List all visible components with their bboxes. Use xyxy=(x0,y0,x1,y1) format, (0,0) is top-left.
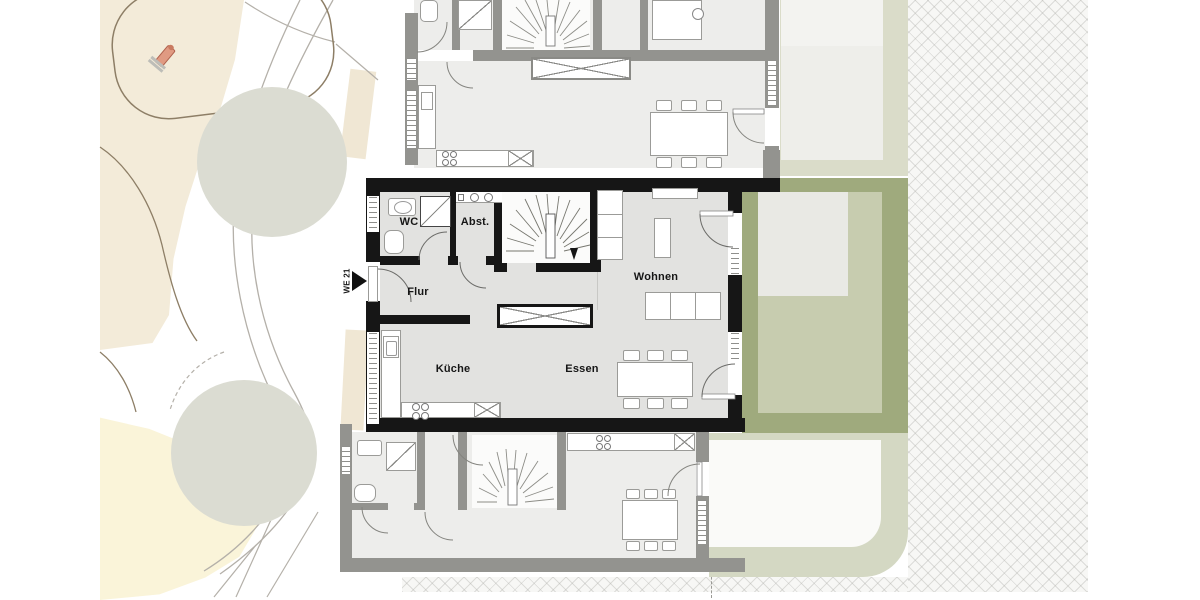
tree-canopy-2 xyxy=(171,380,317,526)
stove-burners xyxy=(412,403,434,418)
chair xyxy=(644,489,658,499)
chair xyxy=(706,100,722,111)
dishwasher xyxy=(474,402,500,418)
door-opening xyxy=(418,50,473,61)
wall-stair-right xyxy=(557,432,566,510)
wall-bath-row xyxy=(380,256,420,265)
furniture-knob xyxy=(692,8,704,20)
room-label-flur: Flur xyxy=(407,286,429,298)
tree-canopy-1 xyxy=(197,87,347,237)
furniture xyxy=(652,0,702,40)
chair xyxy=(706,157,722,168)
washbasin-bowl xyxy=(394,201,412,214)
terrace-we21 xyxy=(758,192,848,296)
wall-flur-kueche xyxy=(380,315,470,324)
sink xyxy=(421,92,433,110)
chair xyxy=(681,100,697,111)
room-label-abst: Abst. xyxy=(461,216,490,228)
window xyxy=(369,333,377,423)
site-plan: WC Abst. Flur Küche Essen Wohnen WE 21 xyxy=(0,0,1200,600)
unit-lower-wall-bottom xyxy=(340,558,745,572)
chair xyxy=(647,398,664,409)
chair xyxy=(626,541,640,551)
window xyxy=(698,500,706,544)
unit-we21-stair-floor xyxy=(502,192,590,263)
chair xyxy=(671,350,688,361)
unit-upper-wall xyxy=(640,0,648,50)
unit-we21-wall-bottom xyxy=(366,418,745,432)
dining-table xyxy=(617,362,693,397)
sideboard xyxy=(531,57,631,80)
wall-stair-bottom xyxy=(502,263,507,272)
chair xyxy=(656,100,672,111)
terrace-lower-unit xyxy=(709,440,881,547)
entrance-door-leaf xyxy=(368,266,378,302)
unit-lower-stair-floor xyxy=(472,435,557,508)
chair xyxy=(671,398,688,409)
window xyxy=(731,333,739,362)
sideboard-wohnen xyxy=(652,188,698,199)
toilet xyxy=(354,484,376,502)
room-label-kueche: Küche xyxy=(436,363,471,375)
chair xyxy=(623,398,640,409)
chair xyxy=(662,541,676,551)
wall-corridor xyxy=(458,432,467,510)
toilet xyxy=(420,0,438,22)
stove-burners xyxy=(596,435,616,450)
chair xyxy=(662,489,676,499)
room-label-wohnen: Wohnen xyxy=(634,271,678,283)
sink-basin xyxy=(386,341,397,356)
unit-upper-wall xyxy=(493,0,502,50)
room-label-essen: Essen xyxy=(565,363,598,375)
chair xyxy=(626,489,640,499)
chair xyxy=(681,157,697,168)
unit-we21-wall-top xyxy=(366,178,780,192)
window xyxy=(342,446,350,474)
unit-upper-stair-floor xyxy=(502,0,590,50)
door-opening xyxy=(696,462,709,496)
shower xyxy=(420,196,451,227)
door-opening xyxy=(765,108,779,146)
stove-burners xyxy=(442,151,462,166)
washbasin xyxy=(357,440,382,456)
sideboard-partition xyxy=(497,304,593,328)
terrace-upper-unit-top xyxy=(781,0,883,46)
chair xyxy=(647,350,664,361)
wardrobe xyxy=(597,190,623,260)
unit-upper-wall xyxy=(593,0,602,50)
tv-board xyxy=(654,218,671,258)
chair xyxy=(656,157,672,168)
room-label-wc: WC xyxy=(400,216,419,228)
window xyxy=(407,90,416,148)
wall-bath-bottom xyxy=(352,503,388,510)
dryer-icon xyxy=(484,193,493,202)
wall-bath-bottom xyxy=(414,503,425,510)
dining-table xyxy=(622,500,678,540)
unit-tag-we21: WE 21 xyxy=(343,268,352,293)
wall-bath-row xyxy=(448,256,458,265)
window xyxy=(731,248,739,275)
washer-icon xyxy=(470,193,479,202)
chair xyxy=(644,541,658,551)
window xyxy=(369,197,377,231)
shower xyxy=(386,442,416,471)
toilet xyxy=(384,230,404,254)
wall-stair-left xyxy=(494,192,502,272)
sofa xyxy=(645,292,721,320)
window xyxy=(407,58,416,80)
wall-bath-right xyxy=(417,432,425,503)
unit-upper-wall xyxy=(763,150,780,178)
window xyxy=(768,60,776,106)
shower xyxy=(458,0,492,30)
wall-stair-bottom xyxy=(536,263,590,272)
dining-table xyxy=(650,112,728,156)
chair xyxy=(623,350,640,361)
dishwasher xyxy=(508,150,533,167)
dishwasher xyxy=(674,433,695,451)
appliance-box xyxy=(458,194,464,201)
